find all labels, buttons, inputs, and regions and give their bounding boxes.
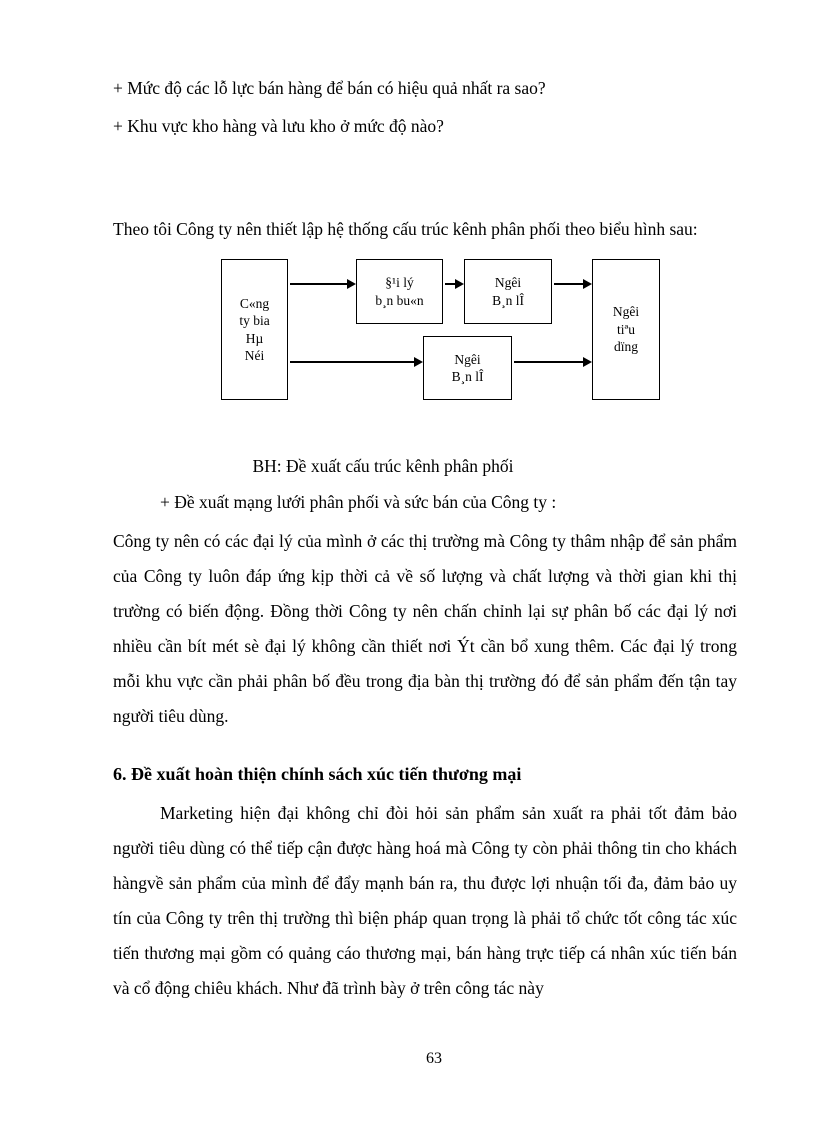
arrow-wholesaler-to-retailer bbox=[445, 283, 455, 285]
section-heading: 6. Đề xuất hoàn thiện chính sách xúc tiế… bbox=[113, 764, 521, 785]
arrowhead-wholesaler-to-retailer-icon bbox=[455, 279, 464, 289]
diagram-box-consumer: Ngêi tiªu dïng bbox=[592, 259, 660, 400]
arrowhead-retailer-bottom-to-consumer-icon bbox=[583, 357, 592, 367]
diagram-box-retailer-top: Ngêi B¸n lÎ bbox=[464, 259, 552, 324]
document-page: + Mức độ các lỗ lực bán hàng để bán có h… bbox=[0, 0, 816, 1123]
diagram-box-retailer-bottom: Ngêi B¸n lÎ bbox=[423, 336, 512, 400]
diagram-caption: BH: Đề xuất cấu trúc kênh phân phối bbox=[113, 456, 653, 477]
arrow-retailer-to-consumer bbox=[554, 283, 583, 285]
diagram-box-company: C«ng ty bia Hµ Néi bbox=[221, 259, 288, 400]
arrow-company-to-retailer-bottom bbox=[290, 361, 414, 363]
arrowhead-company-to-retailer-bottom-icon bbox=[414, 357, 423, 367]
paragraph-distribution: Công ty nên có các đại lý của mình ở các… bbox=[113, 524, 737, 734]
arrow-retailer-bottom-to-consumer bbox=[514, 361, 583, 363]
intro-line: Theo tôi Công ty nên thiết lập hệ thống … bbox=[113, 219, 698, 240]
proposal-line: + Đề xuất mạng lưới phân phối và sức bán… bbox=[160, 492, 556, 513]
arrowhead-retailer-to-consumer-icon bbox=[583, 279, 592, 289]
diagram-box-wholesaler: §¹i lý b¸n bu«n bbox=[356, 259, 443, 324]
paragraph-promotion: Marketing hiện đại không chỉ đòi hỏi sản… bbox=[113, 796, 737, 1006]
question-line-2: + Khu vực kho hàng và lưu kho ở mức độ n… bbox=[113, 116, 444, 137]
arrowhead-company-to-wholesaler-icon bbox=[347, 279, 356, 289]
question-line-1: + Mức độ các lỗ lực bán hàng để bán có h… bbox=[113, 78, 546, 99]
arrow-company-to-wholesaler bbox=[290, 283, 348, 285]
page-number: 63 bbox=[404, 1050, 464, 1068]
